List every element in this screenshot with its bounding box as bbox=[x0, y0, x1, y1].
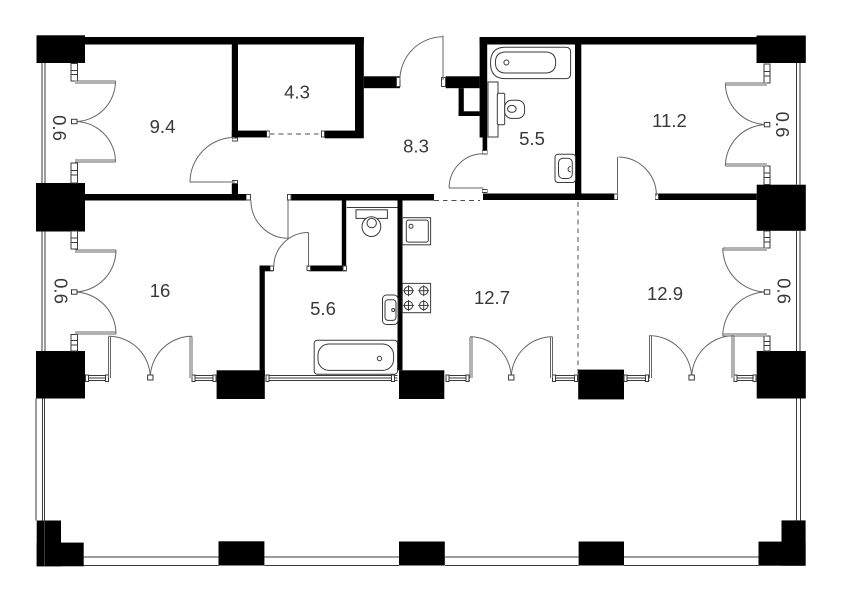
svg-text:0.6: 0.6 bbox=[772, 112, 793, 138]
svg-text:12.9: 12.9 bbox=[647, 283, 683, 304]
svg-text:12.7: 12.7 bbox=[474, 287, 510, 308]
svg-text:0.6: 0.6 bbox=[49, 115, 70, 141]
svg-text:5.6: 5.6 bbox=[310, 298, 336, 319]
svg-text:5.5: 5.5 bbox=[519, 128, 545, 149]
svg-text:0.6: 0.6 bbox=[774, 278, 795, 304]
svg-text:11.2: 11.2 bbox=[652, 110, 687, 131]
svg-text:9.4: 9.4 bbox=[150, 116, 176, 137]
svg-text:8.3: 8.3 bbox=[403, 135, 429, 156]
svg-text:0.6: 0.6 bbox=[51, 278, 72, 304]
svg-text:16: 16 bbox=[150, 280, 171, 301]
svg-text:4.3: 4.3 bbox=[284, 82, 310, 103]
